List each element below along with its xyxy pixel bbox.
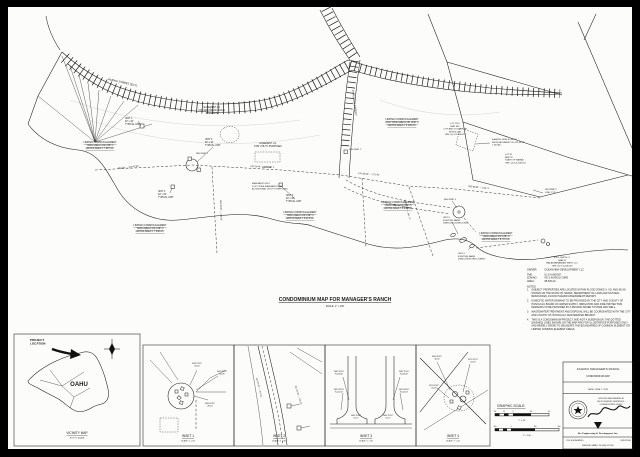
project-location-arrow — [52, 349, 81, 359]
see-inset-3: SEE INSET 3 — [262, 167, 275, 169]
inset-1-scale: SCALE: 1" = 30' — [181, 440, 195, 443]
surveyor-seal-icon — [569, 401, 587, 419]
titleblock-project: KAHUKU MANAGER'S RANCH — [577, 367, 620, 371]
scalebar-caption: 1" = 100' — [523, 435, 532, 437]
notes-list: 1.SUBJECT PROPERTIES ARE LOCATED WITHIN … — [527, 288, 633, 330]
inset4-bearing: N21°29'10"24.00' — [468, 359, 478, 364]
street-label-pualalea: PUALALEA STREET — [351, 90, 358, 117]
inset3-bearing: N81°44'30"R=20.00' — [334, 389, 344, 394]
oahu-outline — [28, 352, 109, 412]
notes-block: OWNER: OCEANVIEW DEVELOPMENT LLC TMK:(1)… — [527, 268, 633, 360]
inset-1-caption: INSET 1 — [182, 434, 194, 438]
firm-name: Bee Engineering & Development, Inc. — [578, 432, 619, 435]
easement-u1-label: EASEMENT U-1FOR UTILITY PURPOSES — [254, 142, 282, 148]
scalebar-tick: 30 — [530, 411, 532, 413]
inset3-bearing: N08°15'30"R=28.00' — [399, 371, 409, 376]
lce-unit2: LIMITED COMMON ELEMENTYARD AREA FOR UNIT… — [133, 224, 167, 233]
see-inset-4: SEE INSET 4 — [444, 199, 457, 201]
bearing-label: S79°58'20" — 271.46' — [358, 173, 380, 177]
page: CONDOMINIUM MAP FOR MANAGER'S RANCHSCALE… — [0, 0, 640, 457]
inset-4-scale: SCALE: 1" = 30' — [446, 440, 460, 443]
scalebar-tick: 60 — [548, 411, 550, 413]
scalebar-tick: 100 — [534, 426, 537, 428]
inset3-bearing: N08°15'30"16.17' — [383, 415, 393, 420]
lce-unit4: LIMITED COMMON ELEMENTAND YARD AREA FOR … — [385, 118, 419, 127]
project-location-label: PROJECTLOCATION — [30, 338, 45, 346]
scanned-plat-screenshot: { "title": { "text": "CONDOMINIUM MAP FO… — [0, 0, 640, 457]
graphic-scale-heading: GRAPHIC SCALE: — [497, 404, 526, 408]
scalebar-tick: 100 — [494, 426, 497, 428]
bearing-label: N03°39'20" — 165.08' — [219, 200, 222, 221]
firm-address: KANEOHE, HAWAII • PH: (808) 247-2005 — [582, 444, 613, 447]
scalebar-tick: 0 — [511, 426, 512, 428]
unit6-callout: UNIT 6EXISTING FARMDWELLING/STRUCTURES — [458, 253, 486, 261]
graphic-scale-bars — [495, 414, 559, 431]
map-labels: CONDOMINIUM MAP FOR MANAGER'S RANCHSCALE… — [30, 77, 632, 447]
note-item: 1.SUBJECT PROPERTIES ARE LOCATED WITHIN … — [527, 288, 633, 298]
inset-4-box — [416, 345, 490, 446]
titleblock-date: DATE: JUNE 7, 2021 — [588, 388, 609, 391]
note-item: 2.DOMESTIC WATER DEMAND TO BE PROVIDED B… — [527, 299, 633, 309]
inset-2-box — [234, 345, 325, 446]
owner-value: OCEANVIEW DEVELOPMENT LLC — [544, 268, 584, 271]
inset-3-box — [325, 345, 416, 446]
stamp-text: ME OR UNDER MY SUPERVISION. — [597, 401, 625, 403]
owner-label: OWNER: — [527, 268, 544, 271]
titleblock-subtitle: CONDOMINIUM MAP — [586, 375, 610, 378]
inset-3-scale: SCALE: 1" = 30' — [359, 440, 373, 443]
north-compass-icon — [104, 339, 120, 359]
inset-2-caption: INSET 2 — [273, 434, 285, 438]
unit4-callout: UNIT 440' x 40'TYPICAL UNIT — [286, 195, 302, 203]
scalebar-caption: 1" = 30' — [518, 420, 526, 422]
map-scale: SCALE: 1" = 100' — [326, 305, 345, 308]
lot-fan — [38, 56, 152, 142]
stamp-text: THIS WORK WAS PREPARED BY — [598, 397, 625, 400]
leader-lines — [138, 121, 543, 250]
lce-unit5: LIMITED COMMON ELEMENTYARD AREA FOR UNIT… — [381, 201, 415, 210]
firm-service-left: CIVIL ENGINEERING — [566, 440, 584, 442]
owner-row: OWNER: OCEANVIEW DEVELOPMENT LLC — [527, 268, 633, 271]
school-encroachment-label: KAHUKU HIGH SCHOOLENCROACHMENT 42,128.44… — [492, 138, 525, 147]
inset3-bearing: N08°15'30"16.17' — [351, 415, 361, 420]
inset2-bearing: N12°46'10" — 154.22' — [294, 386, 302, 406]
lce-unit1: LIMITED COMMON ELEMENTYARD AREA FOR UNIT… — [83, 141, 117, 150]
stamp-text: LICENSE EXPIRES: 04/30/22 — [600, 404, 623, 406]
unit3-callout: UNIT 340' x 40'TYPICAL UNIT — [158, 191, 174, 199]
inset-3-caption: INSET 3 — [360, 434, 372, 438]
firm-service-right: SURVEYING — [620, 440, 631, 442]
inset3-bearing: N08°15'30"R=28.00' — [334, 371, 344, 376]
scalebar-tick: 200 — [558, 426, 561, 428]
vicinity-caption: VICINITY MAP — [66, 431, 87, 435]
see-inset-2: SEE INSET 2 — [349, 149, 362, 151]
lce-unit3: LIMITED COMMON ELEMENTYARD AREA FOR UNIT… — [283, 211, 317, 220]
signature-scribble — [588, 406, 630, 417]
street-label-huehu: HUEHU STREET (EXT) — [108, 77, 138, 88]
note-item: 4.THIS IS A CONDOMINIUM PROJECT, AND NOT… — [527, 318, 633, 331]
vicinity-subcaption: NOT TO SCALE — [70, 437, 85, 440]
see-inset-1: SEE INSET 1 — [196, 153, 209, 155]
island-roads — [40, 370, 90, 408]
subdivision-roads — [46, 8, 562, 178]
scalebar-tick: 15 — [503, 411, 505, 413]
parcel-boundary — [28, 14, 632, 260]
island-label: OAHU — [70, 382, 88, 388]
unit2-callout: UNIT 240' x 40'TYPICAL UNIT — [205, 139, 221, 147]
inset-4-caption: INSET 4 — [447, 434, 459, 438]
lot-47-label: LOT 47BMP 32STATE OF HAWAIITMK: (1) 5-6-… — [505, 154, 527, 164]
inset-2-scale: SCALE: 1" = 30' — [272, 440, 286, 443]
inset3-bearing: N81°44'30"R=20.00' — [399, 389, 409, 394]
scalebar-tick: 0 — [513, 411, 514, 413]
bearing-label: 762.08' — S72°47'30" — [118, 166, 140, 170]
note-item: 3.WASTEWATER TREATMENT AND DISPOSAL WILL… — [527, 310, 633, 316]
lce-unit6: LIMITED COMMON ELEMENTYARD AREA FOR UNIT… — [479, 232, 513, 241]
plat-drawing: CONDOMINIUM MAP FOR MANAGER'S RANCHSCALE… — [0, 0, 640, 457]
easement-a1-label: EASEMENT A-1FOR ARCHAEOLOGICALPRESERVE — [199, 106, 226, 115]
parcel-info-row: AREA:98.636 AC. — [527, 280, 633, 283]
map-title: CONDOMINIUM MAP FOR MANAGER'S RANCH — [279, 297, 392, 303]
inset4-bearing: S81°02'40"18.00' — [429, 385, 439, 390]
inset2-bearing: N10°28'30" — 262.40' — [255, 378, 262, 398]
inset1-bearing: N83°02'40"28.00' — [205, 403, 215, 408]
inset1-bearing: N41°23'10"56.08' — [217, 371, 227, 376]
parcel-info: TMK:(1) 5-6-008:007ZONING:AG-2 AGRICULTU… — [527, 273, 633, 283]
exclusion-label: EXCLUSION #1(MAP 2)MALAEKAHANA AG WEST L… — [546, 257, 578, 267]
vicinity-map-box — [14, 334, 140, 446]
bearing-label: S82°05'30" — 246.71' — [468, 186, 490, 190]
inset1-bearing: S08°15'30"30.00' — [192, 363, 202, 368]
inset4-bearing: S68°30'50"30.00' — [432, 356, 442, 361]
scalebar-tick: 30 — [494, 411, 496, 413]
inset-1-box — [143, 345, 234, 446]
contour-lines — [70, 100, 500, 143]
